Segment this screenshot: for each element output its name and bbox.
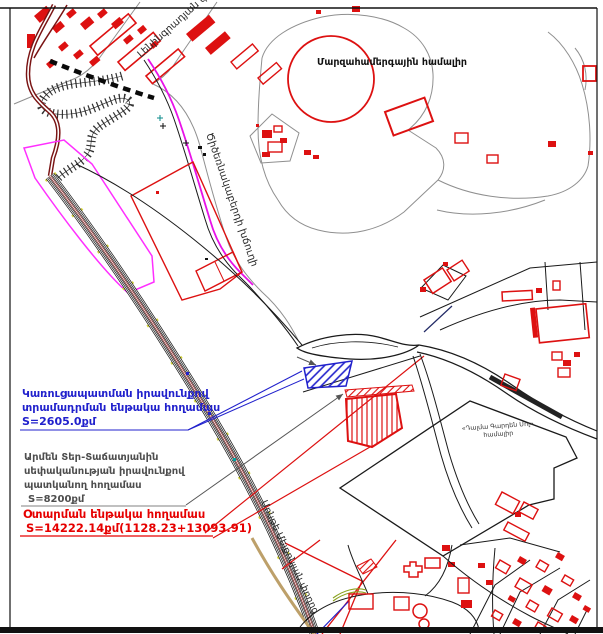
hatched-allocation-areas — [304, 361, 414, 574]
highway-lines — [144, 59, 298, 346]
map-canvas: Լենինգրադյան փողոց Ծիծեռնակաբերդի խճուղի… — [0, 0, 603, 634]
annotation-ownership-line2: սեփականության իրավունքով — [24, 466, 185, 477]
bottom-center-parcels — [300, 545, 495, 634]
annotation-ownership-line4: S=8200քմ — [28, 494, 85, 505]
drawing-frame — [0, 8, 603, 633]
annotation-building-right-line1: Կառուցապատման իրավունքով — [22, 387, 210, 400]
dashed-retaining-line — [50, 61, 154, 98]
annotation-ownership-line1: Արմեն Տեր-Տաճատյանին — [24, 452, 158, 463]
label-sports-complex: Մարզահամերգային համալիր — [317, 57, 467, 68]
red-hatched-parcel — [346, 394, 402, 447]
serpentine-road-slope-hatching — [41, 76, 129, 178]
blue-hatched-parcel — [304, 361, 352, 388]
annotation-alienation: Օտարման ենթակա հողամաս S=14222.14քմ(1128… — [23, 507, 252, 535]
red-hatched-box-small — [357, 559, 377, 574]
annotation-alienation-line2: S=14222.14քմ(1128.23+13093.91) — [26, 521, 252, 535]
bottom-right-dense-quarter — [443, 538, 591, 634]
buildings-mid-cluster — [256, 124, 287, 157]
buildings-lower-right-mid — [495, 492, 538, 541]
annotation-ownership: Արմեն Տեր-Տաճատյանին սեփականության իրավո… — [24, 452, 185, 505]
annotation-building-right-line3: S=2605.0քմ — [22, 415, 97, 428]
annotation-building-right: Կառուցապատման իրավունքով տրամադրման ենթա… — [22, 387, 220, 428]
label-dalma-mall-line2: համալիր — [483, 430, 513, 439]
maroon-road — [28, 5, 67, 176]
annotation-alienation-line1: Օտարման ենթակա հողամաս — [23, 507, 205, 521]
magenta-parcel-outline — [24, 140, 154, 293]
annotation-building-right-line2: տրամադրման ենթակա հողամաս — [22, 401, 220, 414]
buildings-scattered-right — [455, 66, 596, 163]
annotation-ownership-line3: պատկանող հողամաս — [24, 480, 142, 491]
site-plan-page: Լենինգրադյան փողոց Ծիծեռնակաբերդի խճուղի… — [0, 0, 603, 634]
sports-complex-building — [288, 6, 433, 159]
